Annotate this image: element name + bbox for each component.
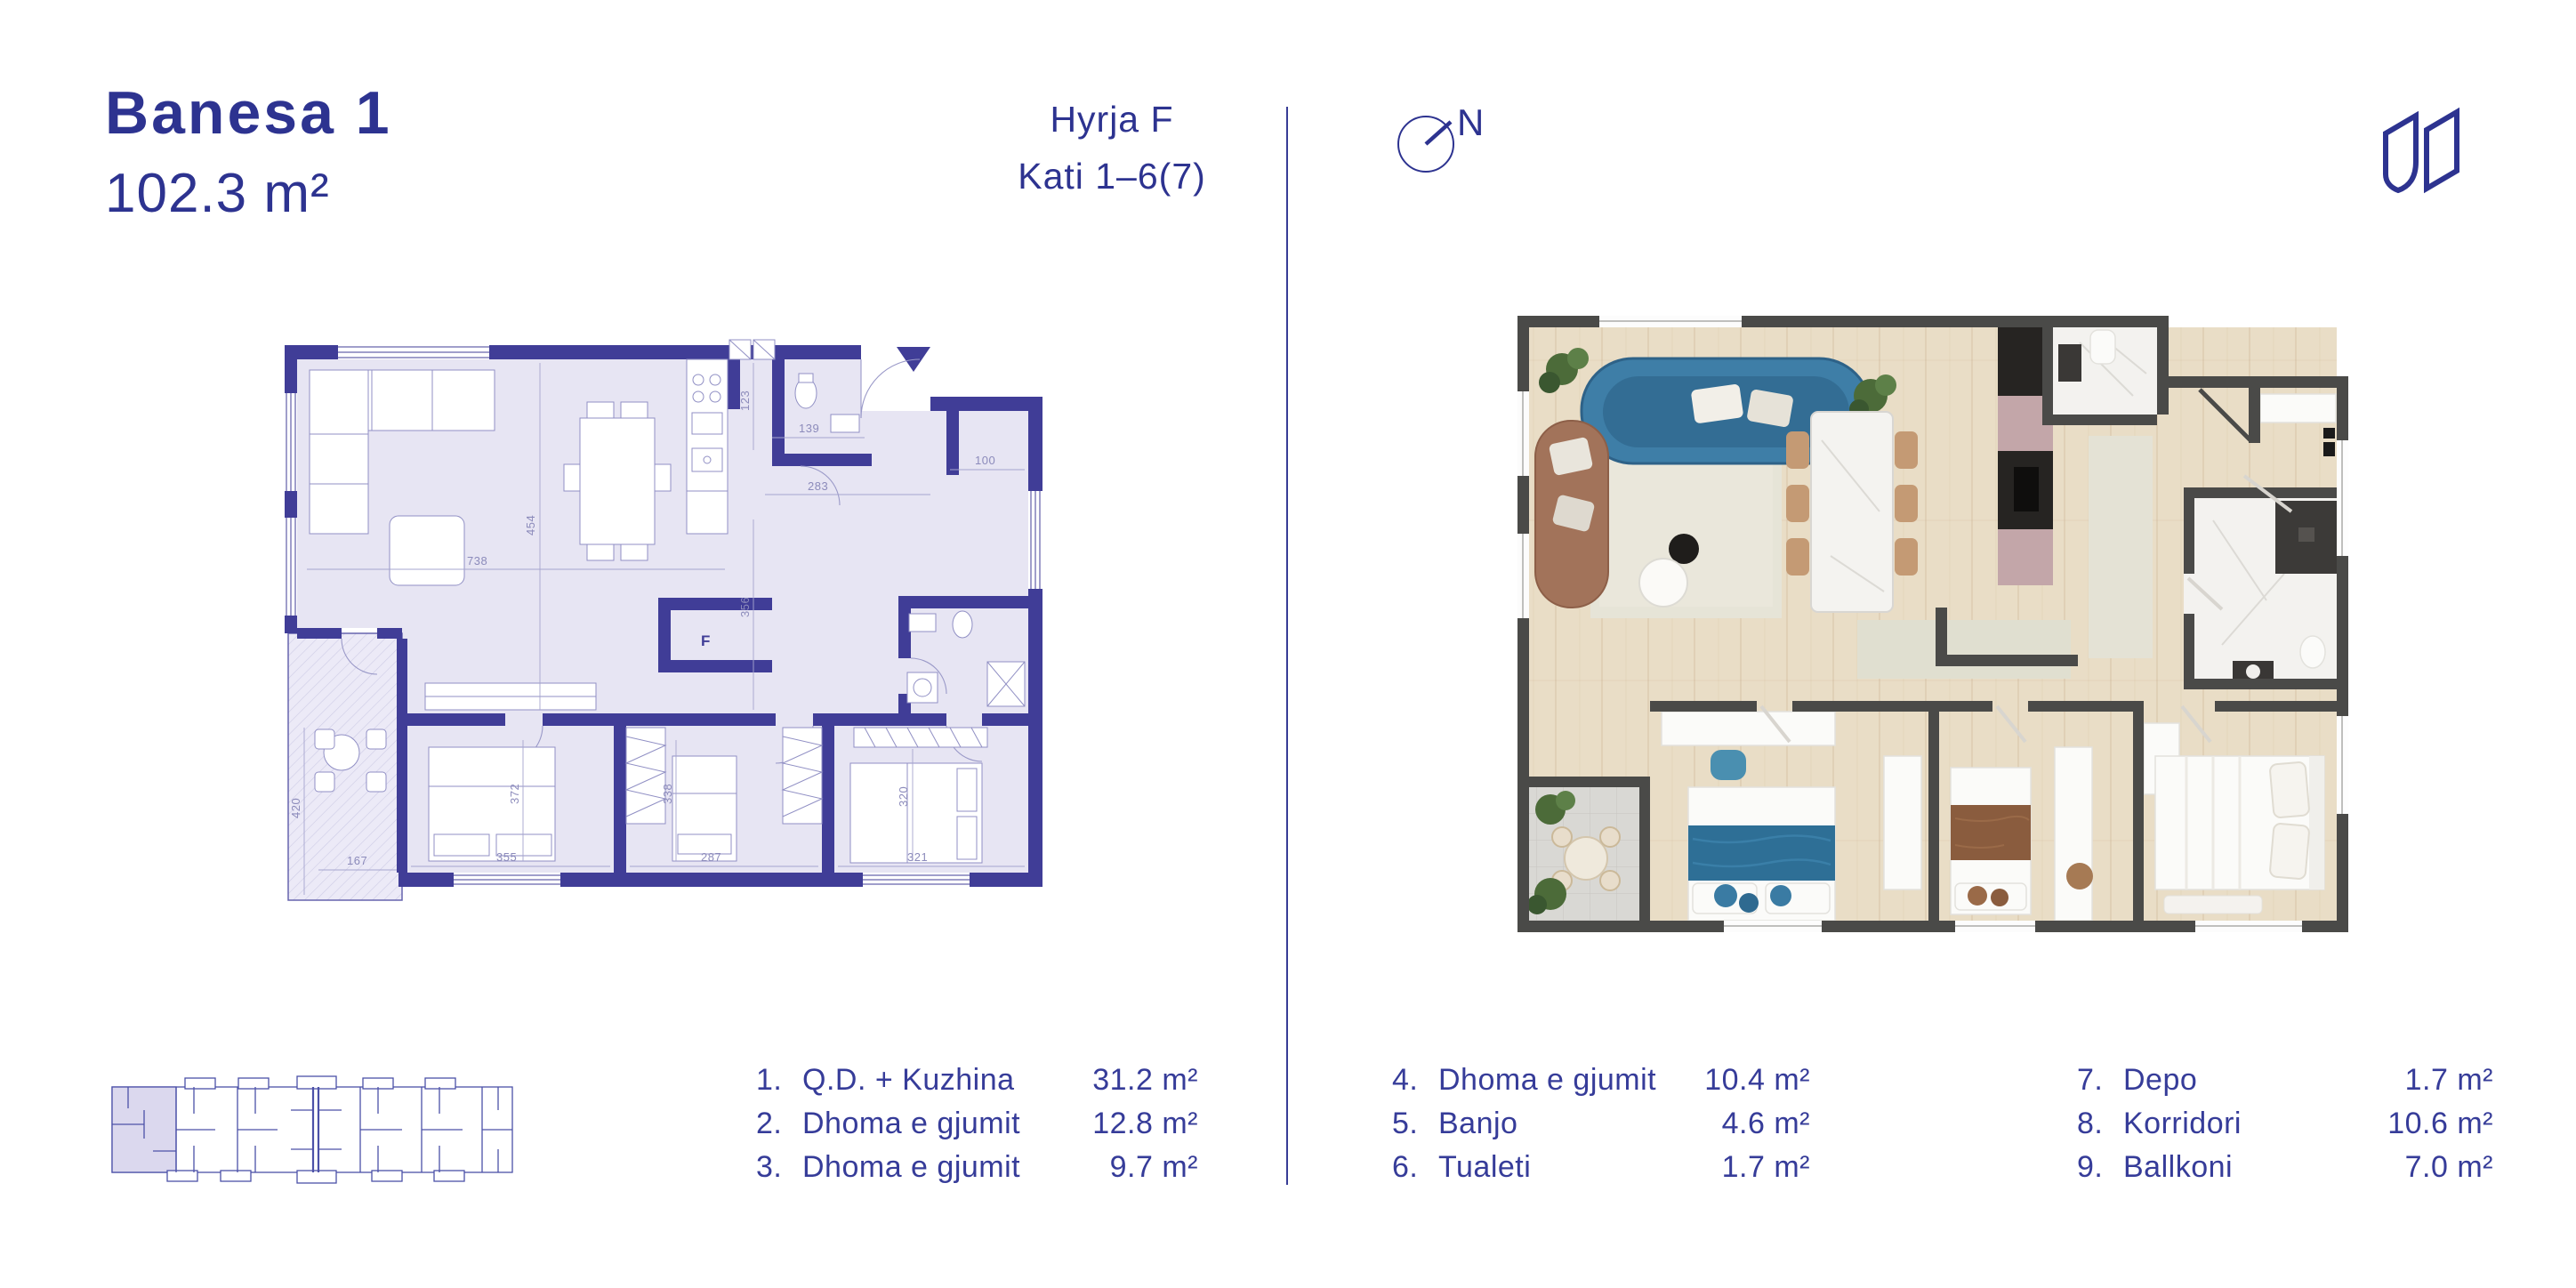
legend-item-area: 9.7 m²	[1110, 1150, 1198, 1185]
legend-item: 7. Depo 1.7 m²	[2077, 1059, 2493, 1102]
dimension-label: 420	[289, 798, 302, 818]
apartment-area: 102.3 m²	[105, 162, 330, 225]
legend-item-area: 12.8 m²	[1092, 1107, 1198, 1141]
dimension-label: 320	[897, 786, 910, 807]
legend-item: 6. Tualeti 1.7 m²	[1392, 1146, 1810, 1189]
entrance-label: Hyrja F	[934, 91, 1290, 148]
brochure-page: { "header": { "title": "Banesa 1", "area…	[0, 0, 2576, 1288]
brand-logo-icon	[2377, 105, 2466, 197]
kitchen-fixtures	[687, 359, 728, 534]
legend-item-label: Korridori	[2123, 1107, 2387, 1141]
legend-item-number: 6.	[1392, 1150, 1438, 1185]
legend-item-area: 10.6 m²	[2387, 1107, 2493, 1141]
logo-left-leaf	[2386, 116, 2416, 190]
legend-item-area: 1.7 m²	[1722, 1150, 1810, 1185]
dimension-label: 454	[524, 515, 537, 535]
entrance-info: Hyrja F Kati 1–6(7)	[934, 91, 1290, 205]
page-title: Banesa 1	[105, 78, 392, 148]
dimension-label: 283	[808, 479, 828, 493]
dimension-label: 100	[975, 454, 995, 467]
compass-needle	[1426, 122, 1451, 144]
floor-plan-2d: F	[285, 331, 1051, 907]
legend-column-3: 7. Depo 1.7 m² 8. Korridori 10.6 m² 9. B…	[2077, 1059, 2493, 1189]
dimension-label: 738	[467, 554, 487, 568]
dimension-label: 338	[661, 784, 674, 804]
dimension-label: 167	[347, 854, 367, 867]
dimension-label: 287	[701, 850, 721, 864]
north-compass-icon: N	[1386, 89, 1519, 187]
legend-item-label: Dhoma e gjumit	[1438, 1063, 1704, 1098]
legend-item-label: Ballkoni	[2123, 1150, 2405, 1185]
dimension-label: 356	[738, 597, 752, 617]
legend-item-label: Depo	[2123, 1063, 2405, 1098]
legend-item-area: 10.4 m²	[1704, 1063, 1810, 1098]
legend-column-2: 4. Dhoma e gjumit 10.4 m² 5. Banjo 4.6 m…	[1392, 1059, 1810, 1189]
legend-item-number: 1.	[756, 1063, 802, 1098]
legend-item-number: 2.	[756, 1107, 802, 1141]
floor-plan-render	[1510, 307, 2353, 944]
legend-item-number: 4.	[1392, 1063, 1438, 1098]
legend-item-label: Tualeti	[1438, 1150, 1722, 1185]
render-wc	[2053, 327, 2157, 415]
legend-item-area: 31.2 m²	[1092, 1063, 1198, 1098]
building-key-plan	[109, 1075, 519, 1188]
legend-item: 2. Dhoma e gjumit 12.8 m²	[756, 1102, 1198, 1146]
legend-item: 8. Korridori 10.6 m²	[2077, 1102, 2493, 1146]
legend-item: 3. Dhoma e gjumit 9.7 m²	[756, 1146, 1198, 1189]
dimension-label: 123	[738, 390, 752, 411]
legend-item-number: 5.	[1392, 1107, 1438, 1141]
dimension-label: 139	[799, 422, 819, 435]
legend-item-number: 7.	[2077, 1063, 2123, 1098]
vertical-divider	[1286, 107, 1288, 1185]
legend-item: 4. Dhoma e gjumit 10.4 m²	[1392, 1059, 1810, 1102]
dimension-label: 355	[496, 850, 517, 864]
legend-item-number: 8.	[2077, 1107, 2123, 1141]
north-label: N	[1457, 101, 1484, 143]
legend-item-area: 1.7 m²	[2405, 1063, 2493, 1098]
legend-item-label: Dhoma e gjumit	[802, 1107, 1092, 1141]
plan-balcony	[288, 633, 402, 900]
logo-right-leaf	[2427, 112, 2457, 189]
legend-item: 5. Banjo 4.6 m²	[1392, 1102, 1810, 1146]
legend-item-label: Banjo	[1438, 1107, 1722, 1141]
fridge-label: F	[701, 632, 710, 649]
render-bedroom-2	[1951, 747, 2093, 921]
legend-item-label: Dhoma e gjumit	[802, 1150, 1110, 1185]
legend-item: 9. Ballkoni 7.0 m²	[2077, 1146, 2493, 1189]
legend-item-number: 9.	[2077, 1150, 2123, 1185]
legend-item-area: 7.0 m²	[2405, 1150, 2493, 1185]
legend-column-1: 1. Q.D. + Kuzhina 31.2 m² 2. Dhoma e gju…	[756, 1059, 1198, 1189]
legend-item-number: 3.	[756, 1150, 802, 1185]
dimension-label: 372	[508, 784, 521, 804]
legend-item-area: 4.6 m²	[1722, 1107, 1810, 1141]
legend-item-label: Q.D. + Kuzhina	[802, 1063, 1092, 1098]
dimension-label: 321	[907, 850, 928, 864]
legend-item: 1. Q.D. + Kuzhina 31.2 m²	[756, 1059, 1198, 1102]
floor-range-label: Kati 1–6(7)	[934, 148, 1290, 205]
